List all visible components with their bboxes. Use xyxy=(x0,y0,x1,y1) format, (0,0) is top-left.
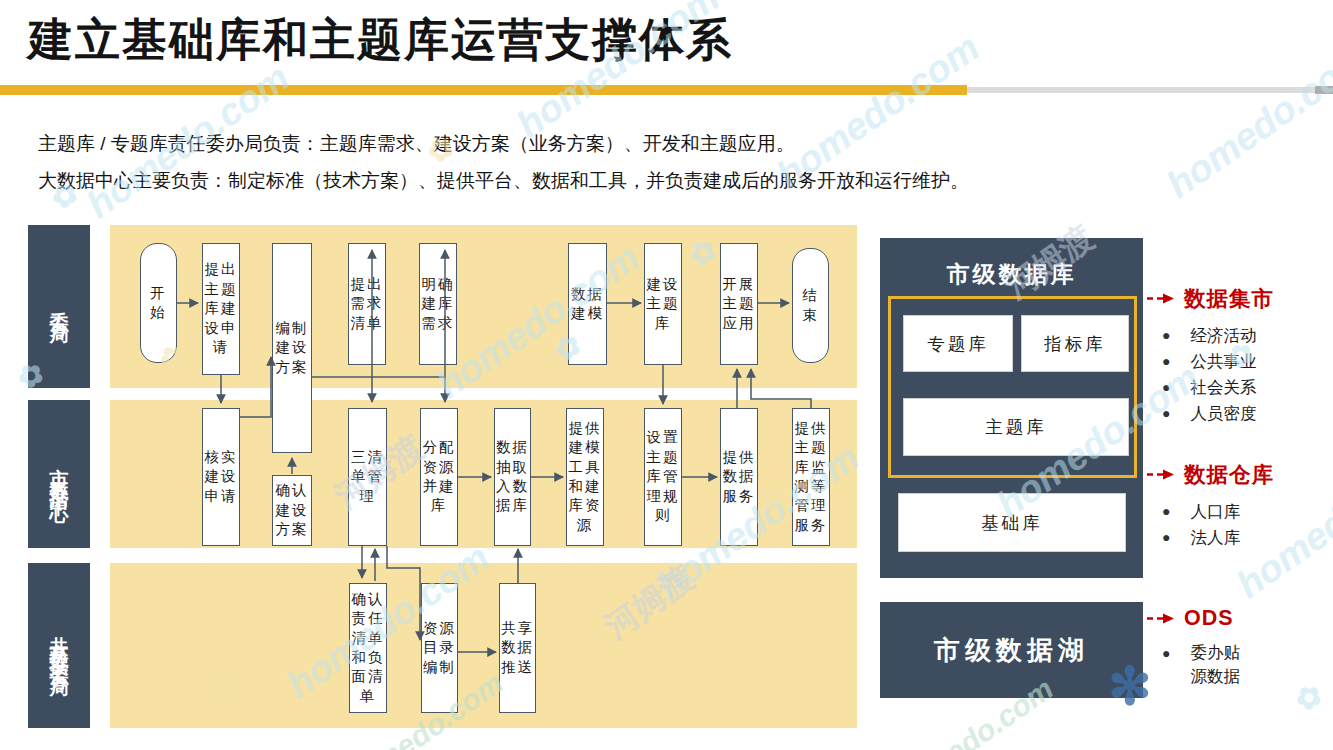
bullet-icon: ● xyxy=(1162,348,1170,374)
flow-node-label: 提出主题库建设申请 xyxy=(204,260,238,357)
red-dashed-arrow-icon xyxy=(1146,468,1176,481)
annotation-label: ODS xyxy=(1184,606,1234,631)
lane-band-2 xyxy=(110,563,857,728)
slide: 建立基础库和主题库运营支撑体系 主题库 / 专题库责任委办局负责：主题库需求、建… xyxy=(0,0,1333,750)
flow-node-end: 结束 xyxy=(792,248,829,363)
flow-node-n13: 数据抽取入数据库 xyxy=(494,408,531,546)
flow-node-n16: 提供数据服务 xyxy=(720,408,758,546)
flow-node-label: 核实建设申请 xyxy=(204,448,238,506)
annotation-item: ●法人库 xyxy=(1162,524,1332,550)
flow-node-n11: 三清单管理 xyxy=(348,408,387,546)
flow-node-n12: 分配资源并建库 xyxy=(420,408,458,546)
flow-node-label: 开展主题应用 xyxy=(722,275,756,333)
flow-node-label: 三清单管理 xyxy=(350,448,385,506)
flow-node-label: 提供主题库监测等管理服务 xyxy=(794,419,828,536)
title-underline-cap xyxy=(1315,86,1333,94)
bullet-icon: ● xyxy=(1162,322,1170,348)
data-mart-highlight-group: 专题库 指标库 主题库 xyxy=(888,296,1137,478)
description-line-1: 主题库 / 专题库责任委办局负责：主题库需求、建设方案（业务方案）、开发和主题应… xyxy=(38,131,795,157)
flow-node-n3: 提出需求清单 xyxy=(348,243,386,365)
bullet-icon: ● xyxy=(1162,400,1170,426)
flow-node-n4: 明确建库需求 xyxy=(419,243,457,365)
flow-node-label: 明确建库需求 xyxy=(421,275,455,333)
annotation-item: ●人员密度 xyxy=(1162,400,1332,426)
db-box-indicator: 指标库 xyxy=(1021,315,1129,372)
page-title: 建立基础库和主题库运营支撑体系 xyxy=(28,10,733,70)
flow-node-n18: 确认责任清单和负面清单 xyxy=(349,583,387,713)
flow-node-start: 开始 xyxy=(140,243,177,363)
flow-node-label: 开始 xyxy=(150,284,167,323)
flow-node-label: 分配资源并建库 xyxy=(422,438,456,516)
bullet-icon: ● xyxy=(1162,374,1170,400)
flow-node-n20: 共享数据推送 xyxy=(499,583,536,713)
annotation-数据仓库: 数据仓库 ●人口库●法人库 xyxy=(1146,460,1332,550)
flow-node-n7: 开展主题应用 xyxy=(720,243,758,365)
flow-node-label: 结束 xyxy=(802,286,819,325)
annotation-item: ●公共事业 xyxy=(1162,348,1332,374)
annotation-item: ●人口库 xyxy=(1162,498,1332,524)
annotation-label: 数据仓库 xyxy=(1184,460,1274,489)
red-dashed-arrow-icon xyxy=(1146,612,1176,625)
annotation-ODS: ODS ●委办贴源数据 xyxy=(1146,606,1332,688)
flow-node-n14: 提供建模工具和建库资源 xyxy=(566,408,604,546)
city-data-lake-title: 市级数据湖 xyxy=(880,602,1143,698)
flow-node-label: 资源目录编制 xyxy=(423,619,456,677)
annotation-item: ●委办贴源数据 xyxy=(1162,640,1332,688)
city-database-panel: 市级数据库 专题库 指标库 主题库 基础库 xyxy=(880,238,1143,578)
db-box-special-topic: 专题库 xyxy=(903,315,1013,372)
flow-node-label: 数据建模 xyxy=(570,285,605,324)
annotation-item: ●社会关系 xyxy=(1162,374,1332,400)
description-line-2: 大数据中心主要负责：制定标准（技术方案）、提供平台、数据和工具，并负责建成后的服… xyxy=(38,168,969,194)
lane-label-0: 委办局 xyxy=(28,225,90,388)
flow-node-label: 设置主题库管理规则 xyxy=(646,428,680,525)
flow-node-n9: 核实建设申请 xyxy=(202,408,240,546)
flow-node-n5: 数据建模 xyxy=(568,243,607,365)
annotation-item: ●经济活动 xyxy=(1162,322,1332,348)
title-underline-gray xyxy=(967,87,1315,93)
annotation-label: 数据集市 xyxy=(1184,284,1274,313)
flow-node-label: 确认建设方案 xyxy=(274,481,310,539)
flow-node-n2: 编制建设方案 xyxy=(272,243,312,453)
annotation-数据集市: 数据集市 ●经济活动●公共事业●社会关系●人员密度 xyxy=(1146,284,1332,426)
watermark-text: homedo.com xyxy=(1159,36,1333,207)
flow-node-n19: 资源目录编制 xyxy=(421,583,458,713)
flow-node-label: 提供建模工具和建库资源 xyxy=(568,419,602,536)
city-database-title: 市级数据库 xyxy=(880,238,1143,290)
flow-node-n15: 设置主题库管理规则 xyxy=(644,408,682,546)
flow-node-n17: 提供主题库监测等管理服务 xyxy=(792,408,830,546)
flow-node-label: 共享数据推送 xyxy=(501,619,534,677)
flow-node-label: 编制建设方案 xyxy=(274,319,310,377)
flow-node-label: 数据抽取入数据库 xyxy=(496,438,529,516)
red-dashed-arrow-icon xyxy=(1146,292,1176,305)
bullet-icon: ● xyxy=(1162,524,1170,550)
lane-label-1: 市大数据中心 xyxy=(28,400,90,548)
db-box-base: 基础库 xyxy=(898,493,1126,552)
flow-node-label: 建设主题库 xyxy=(646,275,680,333)
flow-node-label: 提供数据服务 xyxy=(722,448,756,506)
city-data-lake-panel: 市级数据湖 xyxy=(880,602,1143,698)
db-box-theme: 主题库 xyxy=(903,398,1129,456)
bullet-icon: ● xyxy=(1162,640,1170,688)
flow-node-label: 提出需求清单 xyxy=(350,275,384,333)
lane-label-2: 共享数据委办局 xyxy=(28,563,90,728)
flow-node-label: 确认责任清单和负面清单 xyxy=(351,590,385,707)
flow-node-n1: 提出主题库建设申请 xyxy=(202,243,240,375)
bullet-icon: ● xyxy=(1162,498,1170,524)
flow-node-n6: 建设主题库 xyxy=(644,243,682,365)
title-underline-accent xyxy=(0,85,967,95)
flow-node-n10: 确认建设方案 xyxy=(272,475,312,546)
